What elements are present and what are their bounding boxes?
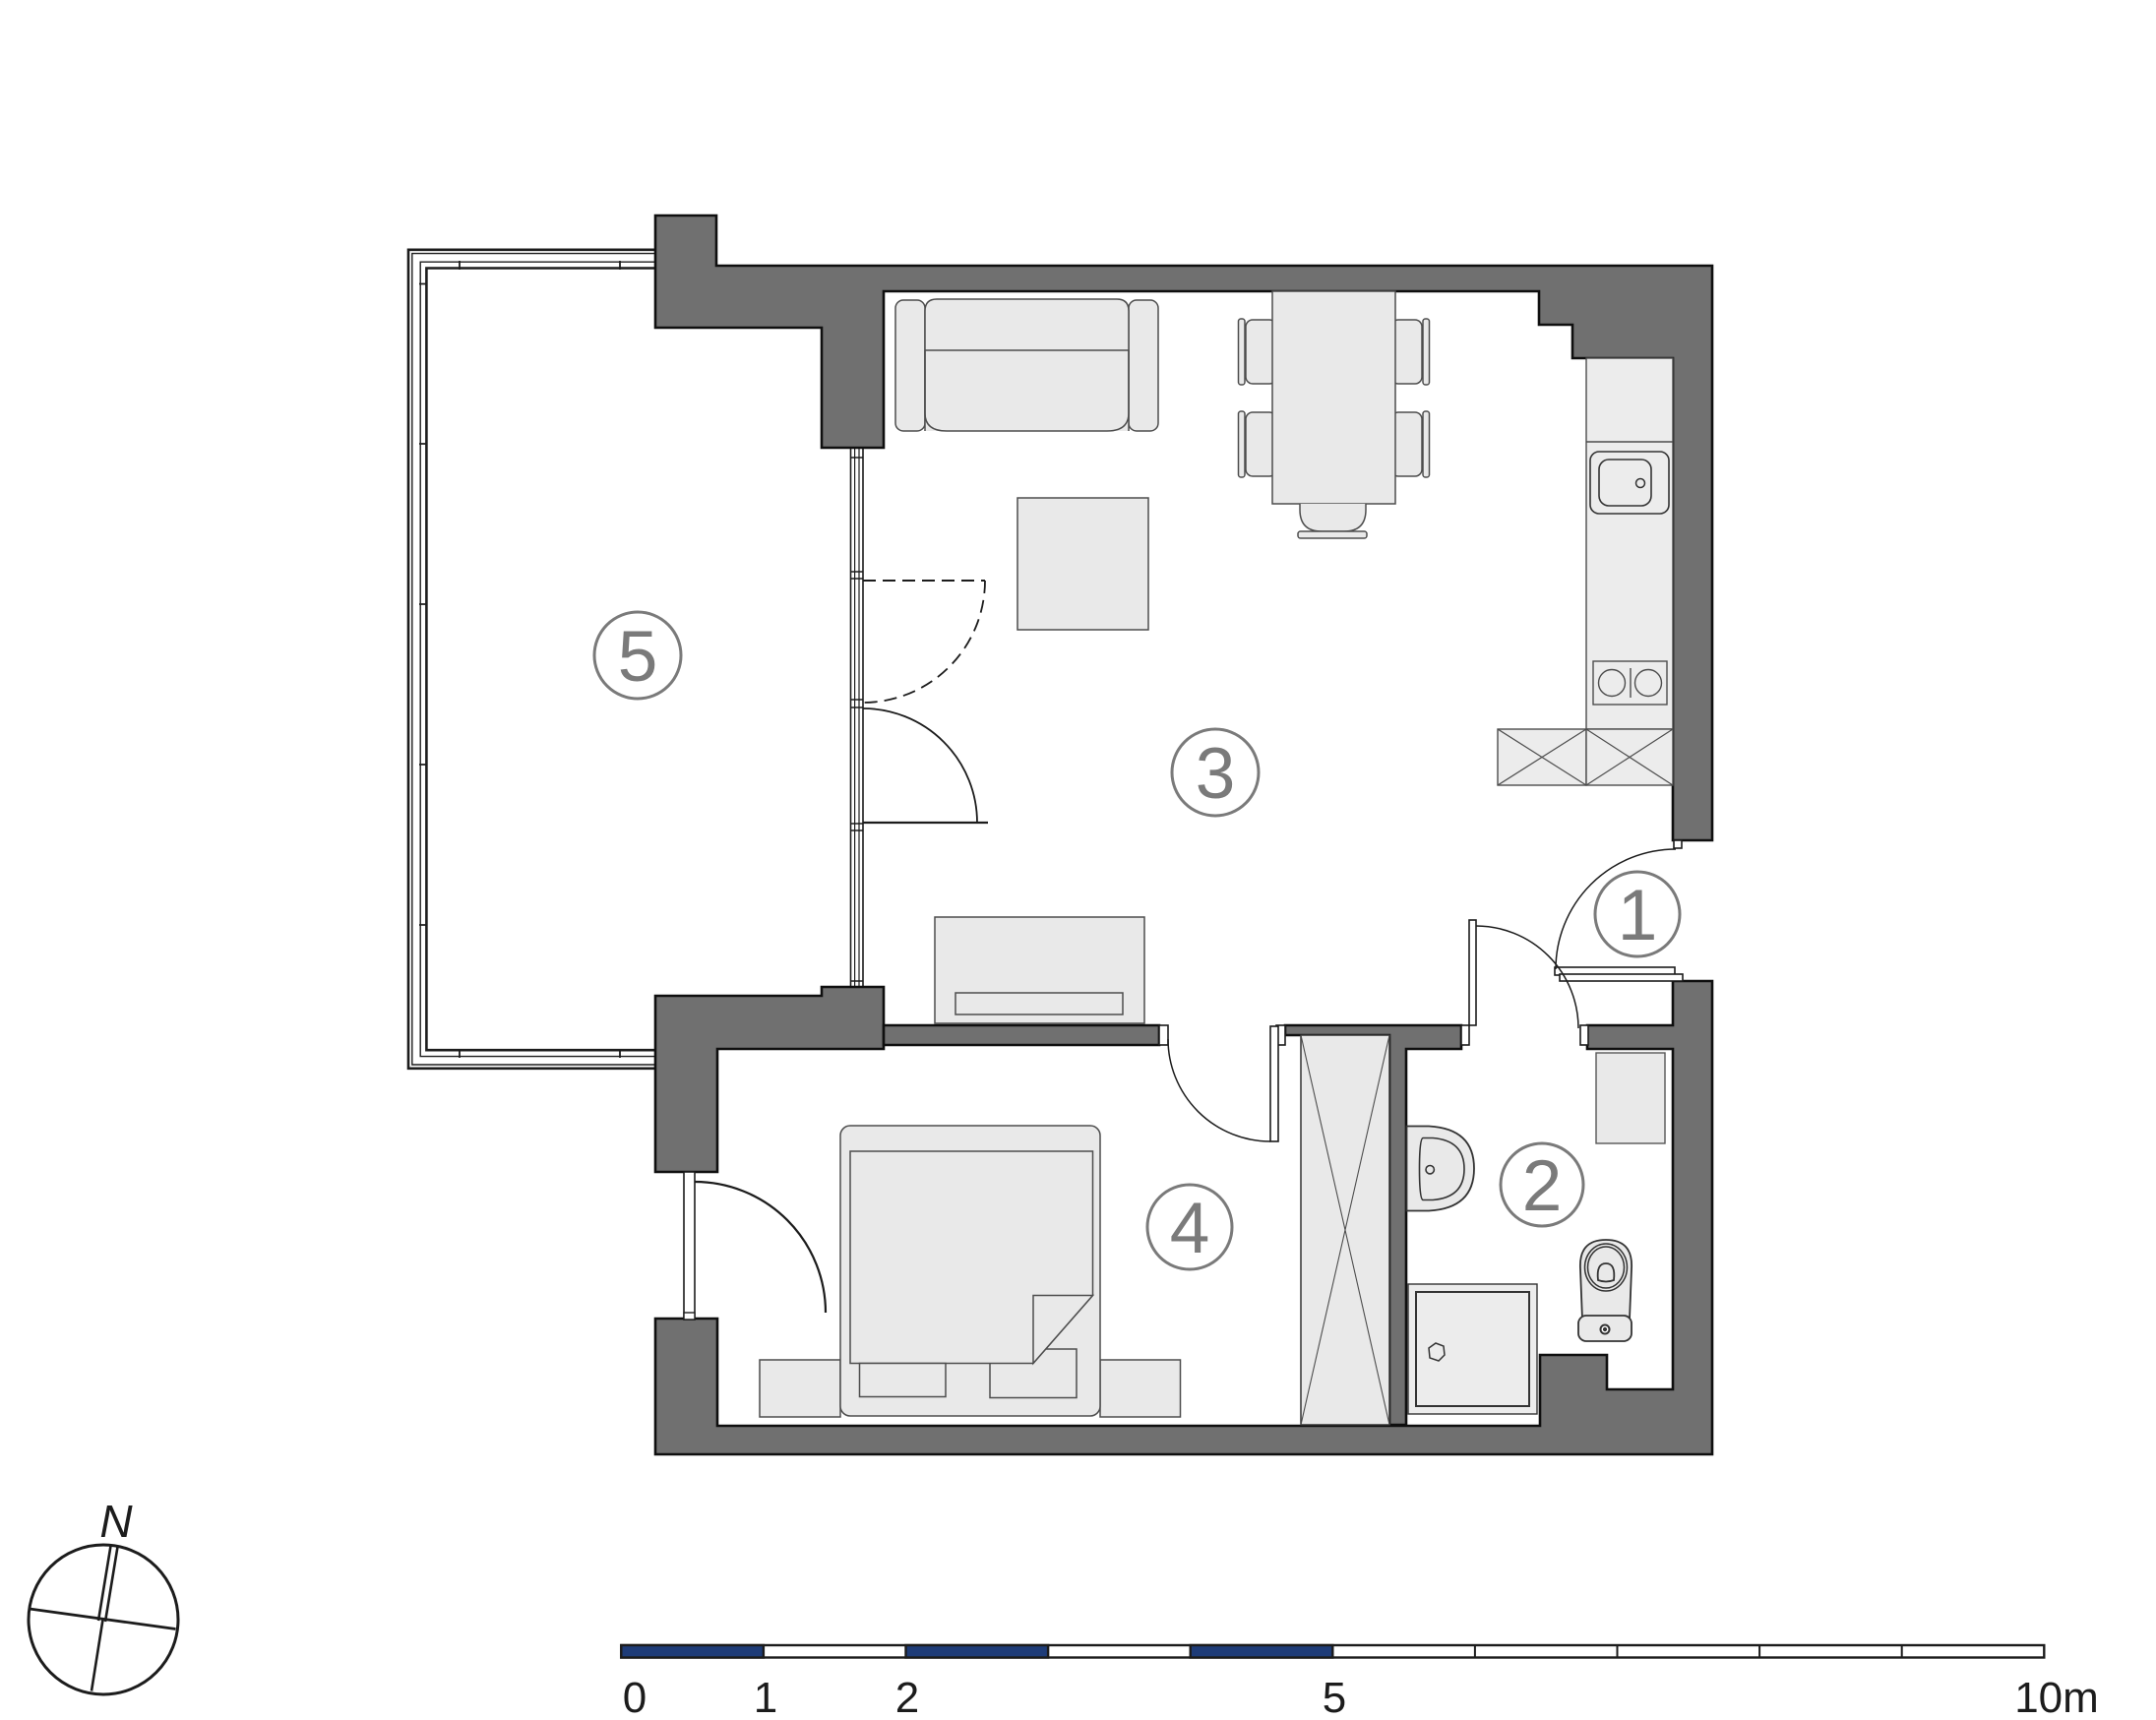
svg-text:5: 5 [618,617,658,697]
svg-text:5: 5 [1323,1674,1346,1720]
svg-text:2: 2 [895,1674,919,1720]
svg-text:0: 0 [623,1674,647,1720]
svg-text:1: 1 [754,1674,777,1720]
svg-text:N: N [99,1496,133,1547]
svg-text:3: 3 [1196,734,1236,814]
svg-text:4: 4 [1170,1189,1210,1268]
svg-text:10m: 10m [2014,1674,2099,1720]
svg-text:2: 2 [1522,1146,1563,1226]
svg-text:1: 1 [1618,876,1658,955]
